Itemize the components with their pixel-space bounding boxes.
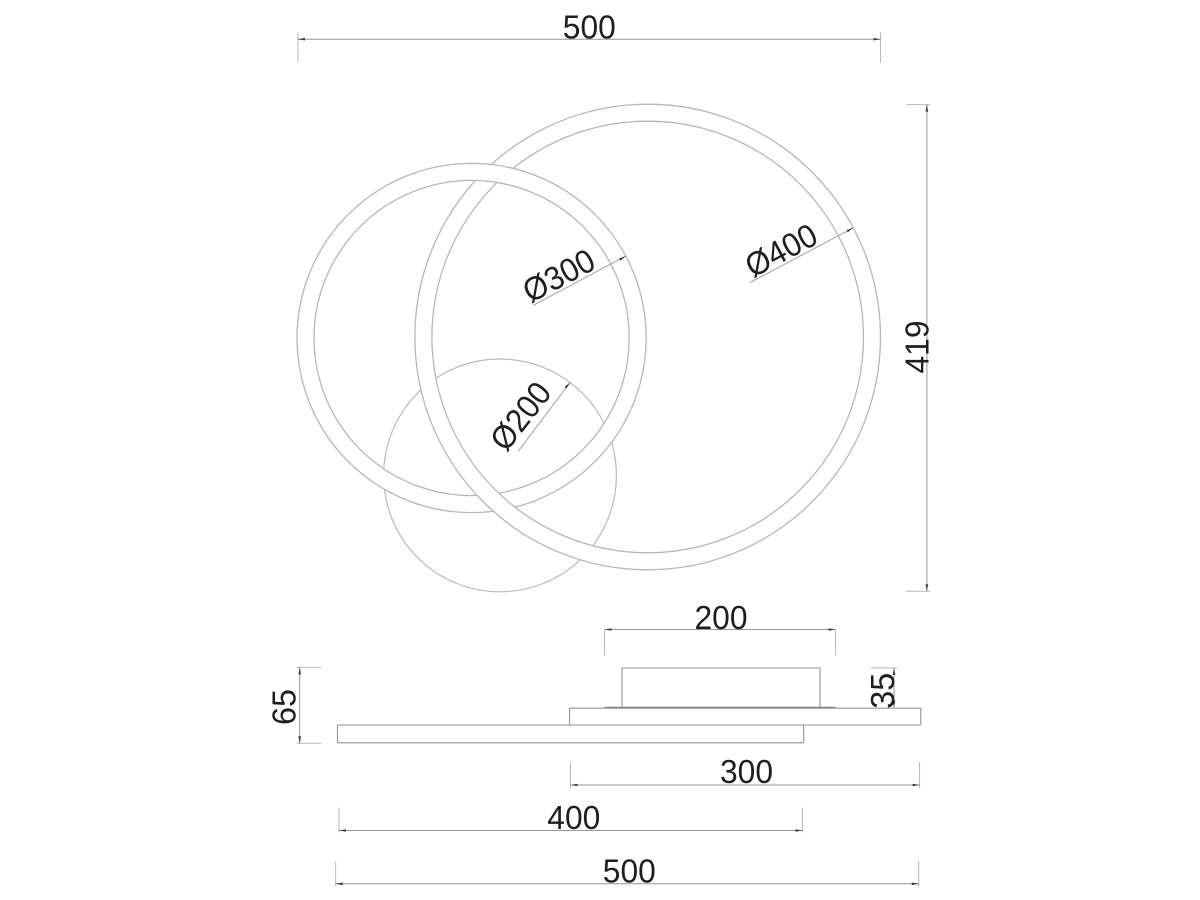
svg-text:200: 200 (695, 599, 748, 636)
svg-text:419: 419 (899, 321, 936, 374)
svg-text:65: 65 (266, 689, 303, 725)
svg-text:35: 35 (864, 673, 901, 709)
svg-text:500: 500 (603, 853, 656, 890)
svg-text:500: 500 (563, 9, 616, 46)
svg-text:300: 300 (720, 753, 773, 790)
svg-text:400: 400 (547, 799, 600, 836)
